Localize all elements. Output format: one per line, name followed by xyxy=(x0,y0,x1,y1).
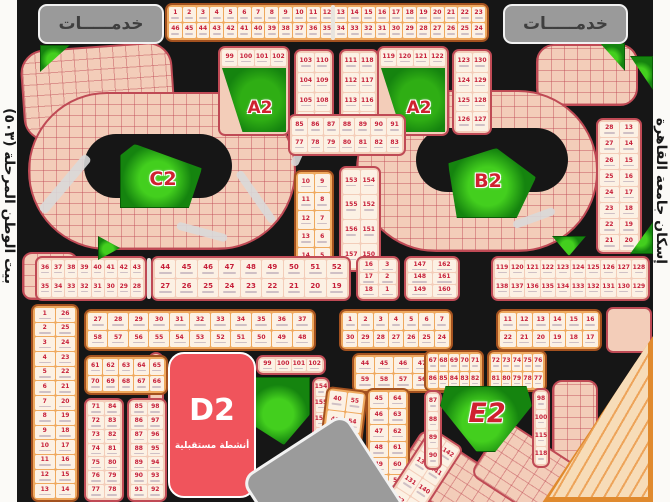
plot-cell: 109 xyxy=(315,73,331,92)
plot-cell: 105 xyxy=(298,93,314,112)
plot-cell: 22 xyxy=(458,7,471,22)
plot-cell: 2 xyxy=(183,7,196,22)
plot-cell: 78 xyxy=(308,136,323,153)
plot-cell: 28 xyxy=(374,331,388,348)
plot-row: 163 xyxy=(360,260,396,272)
plot-row: 918 xyxy=(35,426,75,440)
plot-cell: 113 xyxy=(343,93,359,112)
plot-cell: 44 xyxy=(155,260,175,278)
plot-cell: 75 xyxy=(523,354,533,371)
plot-cell: 22 xyxy=(600,219,619,234)
plot-cell: 27 xyxy=(389,331,403,348)
plot-cell: 2 xyxy=(358,313,372,330)
plot-cell: 21 xyxy=(445,7,458,22)
plot-cell: 44 xyxy=(356,357,374,373)
plot-cell: 6 xyxy=(35,381,55,395)
plot-cell: 88 xyxy=(131,444,147,457)
plot-cell: 127 xyxy=(617,260,631,278)
plot-cell: 99 xyxy=(222,50,237,66)
plot-cell: 117 xyxy=(360,73,376,92)
plot-row: 720 xyxy=(35,396,75,410)
plot-cell: 36 xyxy=(39,260,51,278)
plot-cell: 125 xyxy=(586,260,600,278)
plot-block-mid-strip-left: 36373839404142433534333231302928 xyxy=(35,256,147,301)
plot-cell: 15 xyxy=(362,7,375,22)
plot-cell: 30 xyxy=(149,313,168,330)
zone-label-c2: C2 xyxy=(136,166,190,192)
plot-cell: 43 xyxy=(131,260,143,278)
plot-cell: 14 xyxy=(550,313,566,330)
plot-cell: 79 xyxy=(105,471,121,484)
plot-row: 103110 xyxy=(298,53,330,72)
plot-cell: 55 xyxy=(345,392,364,413)
plot-row: 98 xyxy=(536,392,546,409)
plot-cell: 25 xyxy=(458,23,471,38)
plot-row: 156151 xyxy=(343,220,377,244)
plot-cell: 12 xyxy=(35,470,55,484)
plot-cell: 58 xyxy=(375,374,393,390)
plot-row: 3637383940414243 xyxy=(39,260,143,278)
plot-cell: 87 xyxy=(131,430,147,443)
plot-cell: 129 xyxy=(632,279,646,297)
plot-cell: 5 xyxy=(35,367,55,381)
plot-cell: 23 xyxy=(241,279,261,297)
plot-cell: 40 xyxy=(92,260,104,278)
plot-cell: 41 xyxy=(238,23,251,38)
plot-cell: 45 xyxy=(370,392,388,408)
plot-cell: 61 xyxy=(389,442,407,458)
zone-label-d2: D2 xyxy=(170,392,254,428)
plot-cell: 26 xyxy=(445,23,458,38)
plot-row: 7481 xyxy=(88,444,120,457)
plot-cell: 63 xyxy=(119,359,133,375)
plot-cell: 43 xyxy=(210,23,223,38)
plot-cell: 39 xyxy=(265,23,278,38)
plot-column-center-orange: 109118127136145 xyxy=(294,170,334,270)
plot-cell: 6 xyxy=(419,313,433,330)
plot-cell: 16 xyxy=(620,170,639,185)
plot-row: 2516 xyxy=(600,170,638,185)
plot-cell: 126 xyxy=(601,260,615,278)
plot-cell: 17 xyxy=(390,7,403,22)
plot-cell: 14 xyxy=(348,7,361,22)
plot-cell: 29 xyxy=(358,331,372,348)
plot-cell: 45 xyxy=(183,23,196,38)
plot-cell: 14 xyxy=(56,484,76,498)
plot-cell: 101 xyxy=(292,359,307,371)
plot-cell: 3 xyxy=(374,313,388,330)
plot-cell: 17 xyxy=(360,273,378,285)
plot-row: 112117 xyxy=(343,73,375,92)
plot-cell: 120 xyxy=(510,260,524,278)
plot-cell: 80 xyxy=(105,457,121,470)
plot-row: 88 xyxy=(428,412,438,429)
plot-row: 8994 xyxy=(131,457,163,470)
plot-row: 4055 xyxy=(328,390,364,413)
plot-row: 136 xyxy=(298,230,330,248)
plot-cell: 130 xyxy=(473,53,489,72)
plot-block-row3-left: 61626364657069686766 xyxy=(84,355,168,395)
plot-cell: 24 xyxy=(472,23,485,38)
plot-row: 109 xyxy=(298,174,330,192)
plot-cell: 73 xyxy=(88,430,104,443)
plot-cell: 13 xyxy=(533,313,549,330)
plot-cell: 21 xyxy=(56,381,76,395)
plot-cell: 46 xyxy=(370,409,388,425)
plot-cell: 3 xyxy=(197,7,210,22)
plot-cell: 81 xyxy=(355,136,370,153)
plot-cell: 49 xyxy=(272,331,291,348)
plot-cell: 25 xyxy=(198,279,218,297)
plot-cell: 131 xyxy=(601,279,615,297)
plot-cell: 91 xyxy=(387,118,402,135)
plot-cell: 147 xyxy=(408,260,432,272)
plot-cell: 33 xyxy=(65,279,77,297)
plot-row: 8685848382 xyxy=(428,372,480,389)
plot-row: 119120121122123124125126127128 xyxy=(495,260,646,278)
plot-cell: 26 xyxy=(56,308,76,322)
plot-cell: 118 xyxy=(360,53,376,72)
plot-cell: 75 xyxy=(88,457,104,470)
plot-row: 105108 xyxy=(298,93,330,112)
plot-cell: 38 xyxy=(279,23,292,38)
plot-cell: 32 xyxy=(190,313,209,330)
plot-cell: 10 xyxy=(35,440,55,454)
plot-cell: 92 xyxy=(148,485,164,498)
plot-cell: 101 xyxy=(255,50,270,66)
plot-cell: 23 xyxy=(472,7,485,22)
plot-cell: 19 xyxy=(327,279,347,297)
plot-cell: 44 xyxy=(197,23,210,38)
plot-cell: 54 xyxy=(170,331,189,348)
strip-divider xyxy=(147,258,151,299)
plot-cell: 152 xyxy=(361,195,378,219)
plot-cell: 85 xyxy=(131,402,147,415)
plot-row: 115 xyxy=(536,429,546,446)
plot-cell: 36 xyxy=(272,313,291,330)
plot-row: 77787980818283 xyxy=(292,136,402,153)
right-margin-label: إسكان جامعة القاهرة xyxy=(654,118,670,264)
plot-cell: 62 xyxy=(389,425,407,441)
plot-cell: 112 xyxy=(343,73,359,92)
plot-row: 7273747576 xyxy=(491,354,543,371)
plot-cell: 133 xyxy=(571,279,585,297)
plot-cell: 62 xyxy=(103,359,117,375)
plot-cell: 46 xyxy=(394,357,412,373)
plot-row: 7069686766 xyxy=(88,376,164,392)
plot-cell: 21 xyxy=(517,331,533,348)
plot-row: 149160 xyxy=(408,285,456,297)
plot-cell: 50 xyxy=(252,331,271,348)
services-box-right: خدمـــــات xyxy=(503,4,628,44)
plot-cell: 20 xyxy=(431,7,444,22)
plot-cell: 86 xyxy=(131,416,147,429)
plot-cell: 136 xyxy=(525,279,539,297)
plot-cell: 39 xyxy=(78,260,90,278)
plot-cell: 115 xyxy=(536,429,546,446)
plot-cell: 55 xyxy=(149,331,168,348)
plot-cell: 97 xyxy=(148,416,164,429)
plot-row: 118 xyxy=(298,193,330,211)
plot-cell: 16 xyxy=(583,313,599,330)
plot-cell: 3 xyxy=(379,260,397,272)
plot-row: 126 xyxy=(35,308,75,322)
plot-cell: 18 xyxy=(56,426,76,440)
plot-row: 1234567891011121314151617181920212223 xyxy=(169,7,485,22)
plot-cell: 81 xyxy=(491,372,501,389)
plot-cell: 51 xyxy=(231,331,250,348)
plot-cell: 15 xyxy=(566,313,582,330)
plot-cell: 154 xyxy=(316,381,326,396)
plot-row: 4762 xyxy=(370,425,406,441)
plot-cell: 160 xyxy=(433,285,457,297)
plot-row: 4663 xyxy=(370,409,406,425)
plot-cell: 9 xyxy=(315,174,331,192)
plot-cell: 76 xyxy=(88,471,104,484)
plot-cell: 78 xyxy=(105,485,121,498)
plot-cell: 1 xyxy=(343,313,357,330)
plot-cell: 28 xyxy=(417,23,430,38)
plot-row: 444546474849505152 xyxy=(155,260,347,278)
left-margin: بيت الوطن المرحلة (٥٠٣) xyxy=(0,0,17,502)
plot-row: 2728293031323334353637 xyxy=(88,313,312,330)
plot-row: 99100101102 xyxy=(260,359,322,371)
plot-cell: 12 xyxy=(298,211,314,229)
plot-cell: 32 xyxy=(362,23,375,38)
plot-cell: 30 xyxy=(343,331,357,348)
plot-cell: 53 xyxy=(190,331,209,348)
plot-cell: 149 xyxy=(408,285,432,297)
plot-cell: 3 xyxy=(35,337,55,351)
plot-cell: 134 xyxy=(556,279,570,297)
plot-row: 155152 xyxy=(343,195,377,219)
plot-row: 100 xyxy=(536,410,546,427)
plot-cell: 48 xyxy=(293,331,312,348)
plot-cell: 45 xyxy=(176,260,196,278)
plot-cell: 74 xyxy=(512,354,522,371)
plot-cell: 123 xyxy=(456,53,472,72)
plot-cell: 77 xyxy=(533,372,543,389)
plot-row: 6162636465 xyxy=(88,359,164,375)
plot-row: 172 xyxy=(360,273,396,285)
plot-cell: 4 xyxy=(35,352,55,366)
plot-cell: 108 xyxy=(315,93,331,112)
plot-cell: 125 xyxy=(456,93,472,112)
plot-cell: 7 xyxy=(435,313,449,330)
plot-cell: 23 xyxy=(600,203,619,218)
plot-cell: 76 xyxy=(533,354,543,371)
plot-cell: 7 xyxy=(35,396,55,410)
plot-cell: 122 xyxy=(430,50,445,66)
plot-cell: 18 xyxy=(360,285,378,297)
plot-cell: 5 xyxy=(404,313,418,330)
plot-block-mid-strip-right: 1191201211221231241251261271281381371361… xyxy=(491,256,650,301)
plot-cell: 34 xyxy=(231,313,250,330)
plot-cell: 34 xyxy=(52,279,64,297)
plot-row: 423 xyxy=(35,352,75,366)
plot-cell: 52 xyxy=(327,260,347,278)
plot-cell: 123 xyxy=(556,260,570,278)
plot-cell: 7 xyxy=(252,7,265,22)
plot-block-row2-left: 2728293031323334353637585756555453525150… xyxy=(84,309,316,351)
plot-cell: 87 xyxy=(428,394,438,411)
plot-cell: 119 xyxy=(381,50,396,66)
plot-cell: 51 xyxy=(305,260,325,278)
plot-cell: 99 xyxy=(260,359,275,371)
plot-row: 272625242322212019 xyxy=(155,279,347,297)
plot-row: 119120121122 xyxy=(381,50,445,66)
plot-cell: 98 xyxy=(536,392,546,409)
plot-cell: 25 xyxy=(419,331,433,348)
plot-cell: 89 xyxy=(428,431,438,448)
plot-cell: 27 xyxy=(600,138,619,153)
plot-cell: 37 xyxy=(293,313,312,330)
plot-cell: 83 xyxy=(387,136,402,153)
plot-cell: 7 xyxy=(315,211,331,229)
plot-row: 127 xyxy=(298,211,330,229)
plot-cell: 64 xyxy=(134,359,148,375)
plot-row: 9192 xyxy=(131,485,163,498)
plot-row: 104109 xyxy=(298,73,330,92)
plot-cell: 20 xyxy=(305,279,325,297)
plot-cell: 31 xyxy=(376,23,389,38)
plot-cell: 56 xyxy=(129,331,148,348)
plot-row: 2120 xyxy=(600,235,638,250)
plot-cell: 137 xyxy=(510,279,524,297)
plot-cell: 81 xyxy=(105,444,121,457)
plot-cell: 74 xyxy=(88,444,104,457)
plot-block-a2-left: 99100101102 xyxy=(218,46,290,136)
plot-cell: 98 xyxy=(148,402,164,415)
plot-cell: 18 xyxy=(403,7,416,22)
plot-cell: 82 xyxy=(470,372,480,389)
plot-cell: 79 xyxy=(512,372,522,389)
plot-row: 8697 xyxy=(131,416,163,429)
plot-cell: 122 xyxy=(541,260,555,278)
services-box-left: خدمـــــات xyxy=(38,4,164,44)
plot-row: 89 xyxy=(428,431,438,448)
plot-row: 621 xyxy=(35,381,75,395)
plot-cell: 85 xyxy=(439,372,449,389)
plot-cell: 61 xyxy=(88,359,102,375)
plot-row: 124129 xyxy=(456,73,488,92)
plot-cell: 6 xyxy=(238,7,251,22)
plot-cell: 58 xyxy=(88,331,107,348)
plot-row: 1215 xyxy=(35,470,75,484)
plot-cell: 13 xyxy=(298,230,314,248)
plot-cell: 70 xyxy=(88,376,102,392)
plot-cell: 17 xyxy=(56,440,76,454)
plot-cell: 103 xyxy=(298,53,314,72)
plot-cell: 68 xyxy=(119,376,133,392)
plot-cell: 13 xyxy=(620,122,639,137)
plot-cell: 5 xyxy=(224,7,237,22)
plot-cell: 11 xyxy=(298,193,314,211)
plot-cell: 68 xyxy=(439,354,449,371)
plot-cell: 27 xyxy=(155,279,175,297)
plot-cell: 124 xyxy=(571,260,585,278)
plot-cell: 121 xyxy=(525,260,539,278)
plot-row: 8796 xyxy=(131,430,163,443)
plot-block-123-130: 123130124129125128126127 xyxy=(452,49,492,135)
plot-row: 7679 xyxy=(88,471,120,484)
plot-cell: 63 xyxy=(389,409,407,425)
plot-cell: 2 xyxy=(379,273,397,285)
plot-cell: 33 xyxy=(348,23,361,38)
plot-cell: 14 xyxy=(620,138,639,153)
plot-row: 138137136135134133132131130129 xyxy=(495,279,646,297)
plot-cell: 16 xyxy=(360,260,378,272)
plot-cell: 84 xyxy=(449,372,459,389)
plot-cell: 89 xyxy=(131,457,147,470)
plot-row: 90 xyxy=(428,449,438,466)
plot-row: 148161 xyxy=(408,273,456,285)
plot-cell: 82 xyxy=(105,430,121,443)
zone-label-a2-left: A2 xyxy=(232,96,288,120)
plot-cell: 26 xyxy=(600,154,619,169)
plot-cell: 11 xyxy=(35,455,55,469)
plot-cell: 18 xyxy=(566,331,582,348)
plot-cell: 24 xyxy=(219,279,239,297)
plot-cell: 87 xyxy=(324,118,339,135)
plot-cell: 22 xyxy=(500,331,516,348)
zone-label-a2-right: A2 xyxy=(391,96,447,120)
plot-cell: 10 xyxy=(298,174,314,192)
plot-row: 87 xyxy=(428,394,438,411)
plot-cell: 35 xyxy=(39,279,51,297)
plot-row: 225 xyxy=(35,323,75,337)
plot-cell: 6 xyxy=(315,230,331,248)
plot-row: 30292827262524 xyxy=(343,331,449,348)
plot-column-bottom-left-1: 7184728373827481758076797778 xyxy=(84,398,124,502)
plot-row: 9093 xyxy=(131,471,163,484)
plot-row: 126127 xyxy=(456,112,488,131)
plot-cell: 29 xyxy=(129,313,148,330)
plot-cell: 10 xyxy=(293,7,306,22)
plot-cell: 102 xyxy=(271,50,286,66)
plot-cell: 90 xyxy=(428,449,438,466)
plot-cell: 89 xyxy=(355,118,370,135)
plot-cell: 156 xyxy=(343,220,360,244)
plot-cell: 19 xyxy=(56,411,76,425)
plot-cell: 31 xyxy=(92,279,104,297)
plot-cell: 126 xyxy=(456,112,472,131)
plot-cell: 11 xyxy=(307,7,320,22)
plot-row: 8598 xyxy=(131,402,163,415)
plot-row: 2219 xyxy=(600,219,638,234)
plot-cell: 20 xyxy=(56,396,76,410)
plot-cell: 11 xyxy=(500,313,516,330)
plot-cell: 8 xyxy=(265,7,278,22)
plot-block-above-e2-left: 67686970718685848382 xyxy=(424,350,484,392)
plot-row: 7283 xyxy=(88,416,120,429)
plot-cell: 96 xyxy=(148,430,164,443)
plot-cell: 42 xyxy=(118,260,130,278)
plot-cell: 80 xyxy=(340,136,355,153)
plot-cell: 34 xyxy=(334,23,347,38)
plot-cell: 66 xyxy=(150,376,164,392)
plot-cell: 48 xyxy=(370,442,388,458)
plot-cell: 21 xyxy=(600,235,619,250)
plot-cell: 9 xyxy=(279,7,292,22)
plot-cell: 100 xyxy=(238,50,253,66)
plot-cell: 94 xyxy=(148,457,164,470)
plot-cell: 71 xyxy=(88,402,104,415)
services-label: خدمـــــات xyxy=(58,14,143,34)
plot-cell: 46 xyxy=(198,260,218,278)
plot-cell: 28 xyxy=(131,279,143,297)
plot-cell: 90 xyxy=(371,118,386,135)
